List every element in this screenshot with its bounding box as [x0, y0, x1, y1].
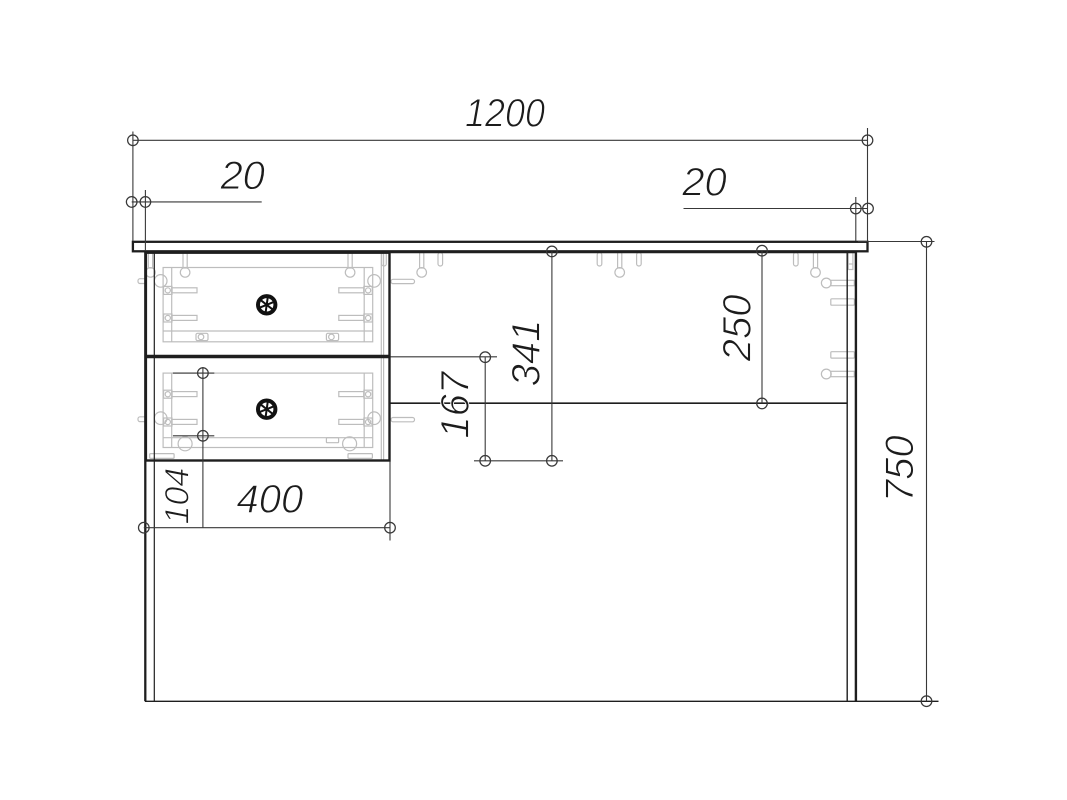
svg-text:20: 20 [681, 161, 727, 205]
svg-text:20: 20 [219, 154, 265, 198]
svg-text:104: 104 [159, 468, 197, 525]
svg-text:250: 250 [715, 295, 759, 363]
svg-text:1200: 1200 [465, 92, 545, 136]
svg-text:400: 400 [237, 478, 304, 522]
svg-text:750: 750 [878, 435, 922, 502]
svg-text:167: 167 [433, 370, 477, 438]
svg-text:341: 341 [504, 320, 548, 387]
